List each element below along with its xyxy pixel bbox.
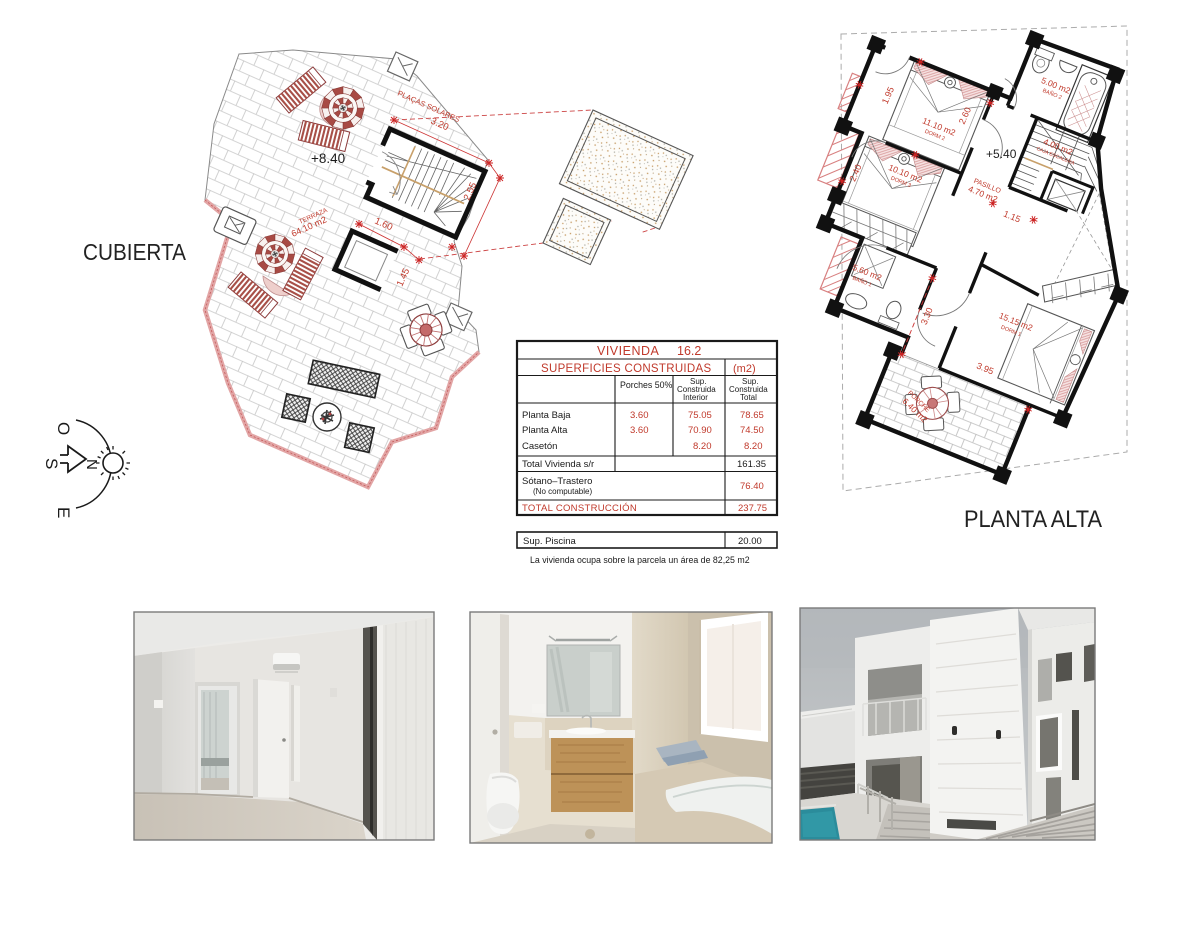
svg-text:16.2: 16.2	[677, 344, 701, 358]
svg-text:Total Vivienda s/r: Total Vivienda s/r	[522, 459, 594, 470]
svg-text:E: E	[54, 507, 73, 518]
svg-text:SUPERFICIES CONSTRUIDAS: SUPERFICIES CONSTRUIDAS	[541, 363, 712, 375]
svg-text:8.20: 8.20	[693, 441, 712, 452]
svg-text:75.05: 75.05	[688, 410, 712, 421]
svg-text:+8.40: +8.40	[311, 151, 345, 166]
svg-text:Planta Alta: Planta Alta	[522, 425, 568, 436]
svg-text:3.60: 3.60	[630, 410, 649, 421]
svg-text:CUBIERTA: CUBIERTA	[83, 239, 187, 265]
svg-text:237.75: 237.75	[738, 503, 767, 514]
svg-text:Casetón: Casetón	[522, 441, 557, 452]
svg-text:O: O	[54, 422, 73, 435]
svg-text:(No computable): (No computable)	[533, 487, 592, 496]
svg-text:TOTAL CONSTRUCCIÓN: TOTAL CONSTRUCCIÓN	[522, 503, 637, 514]
svg-text:N: N	[83, 459, 100, 470]
svg-text:8.20: 8.20	[744, 441, 763, 452]
svg-text:VIVIENDA: VIVIENDA	[597, 344, 660, 358]
svg-text:20.00: 20.00	[738, 536, 762, 547]
svg-text:76.40: 76.40	[740, 481, 764, 492]
svg-text:La vivienda ocupa sobre la par: La vivienda ocupa sobre la parcela un ár…	[530, 555, 750, 565]
svg-text:PLANTA ALTA: PLANTA ALTA	[964, 506, 1102, 533]
svg-text:(m2): (m2)	[733, 363, 756, 375]
svg-text:Sótano–Trastero: Sótano–Trastero	[522, 476, 592, 487]
svg-text:Planta Baja: Planta Baja	[522, 410, 571, 421]
svg-text:161.35: 161.35	[737, 459, 766, 470]
svg-text:S: S	[42, 458, 61, 469]
svg-text:Interior: Interior	[683, 393, 708, 402]
svg-text:+5.40: +5.40	[986, 147, 1017, 161]
svg-text:74.50: 74.50	[740, 425, 764, 436]
svg-text:3.60: 3.60	[630, 425, 649, 436]
svg-text:70.90: 70.90	[688, 425, 712, 436]
svg-text:Total: Total	[740, 393, 757, 402]
svg-text:Sup. Piscina: Sup. Piscina	[523, 536, 577, 547]
svg-text:Porches 50%: Porches 50%	[620, 380, 672, 390]
svg-text:78.65: 78.65	[740, 410, 764, 421]
